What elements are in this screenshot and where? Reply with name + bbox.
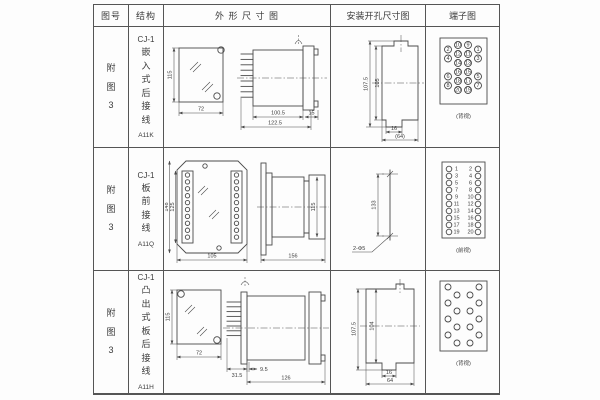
terminal-circle (446, 215, 452, 221)
dim-front-width: 72 (197, 106, 203, 112)
terminal-circle (234, 214, 238, 218)
screw-hole-icon (177, 291, 184, 298)
mounting-plate (261, 163, 266, 255)
terminal-circle (475, 208, 481, 214)
fig-no-row2: 附图3 (105, 181, 118, 238)
terminal-circle (445, 316, 451, 322)
mounting-drawing-row2: 133 2-Φ5 (332, 150, 425, 269)
terminal-circle (445, 284, 451, 290)
model-row2: CJ-1 (138, 171, 155, 180)
hatch-marks (185, 305, 207, 336)
terminal-circle (475, 166, 481, 172)
terminal-number: 20 (467, 229, 473, 235)
terminal-number: 4 (469, 173, 472, 179)
terminal-number: 10 (455, 42, 461, 48)
terminal-number: 18 (455, 78, 461, 84)
terminal-drawing-row3: (背视) (427, 273, 498, 392)
dim-flange: 15 (308, 110, 314, 116)
terminal-circle (454, 292, 460, 298)
hatch-marks (190, 62, 213, 92)
terminal-circle (467, 292, 473, 298)
terminal-circle (476, 332, 482, 338)
screw-hole-icon (216, 246, 220, 250)
terminal-circle (234, 235, 238, 239)
terminal-cell-row3: (背视) (426, 271, 499, 394)
terminal-number: 12 (467, 201, 473, 207)
terminal-circle (475, 194, 481, 200)
terminal-circles: 1357911131517192468101214161820 (446, 166, 481, 235)
terminal-circle (446, 222, 452, 228)
terminal-circles: 1012141618209111315171924681357 (445, 41, 482, 93)
hatch-marks (198, 186, 219, 219)
view-label: (前视) (456, 246, 471, 254)
dim-notch-width: 16 (390, 126, 396, 132)
terminal-circle (185, 207, 189, 211)
terminal-cell-row2: 1357911131517192468101214161820 (前视) (426, 148, 499, 271)
terminal-number: 9 (455, 194, 458, 200)
terminal-circle (475, 215, 481, 221)
terminal-number: 5 (455, 180, 458, 186)
terminal-number: 2 (469, 166, 472, 172)
front-outline (177, 290, 221, 344)
terminal-circle (446, 208, 452, 214)
terminal-number: 11 (465, 51, 471, 57)
terminal-circle (446, 194, 452, 200)
terminal-number: 7 (476, 83, 479, 89)
structure-desc-row2: 板前接线 (139, 182, 152, 236)
terminal-number: 4 (446, 56, 449, 62)
terminal-circle (446, 173, 452, 179)
terminal-circle (475, 229, 481, 235)
terminal-circle (185, 228, 189, 232)
terminal-circle (446, 166, 452, 172)
terminal-circle (475, 180, 481, 186)
terminal-circle (467, 340, 473, 346)
side-view-a11h: 31.5 9.5 126 (223, 277, 329, 385)
flange-tab (314, 49, 318, 55)
hole-note: 2-Φ5 (353, 246, 365, 252)
terminal-number: 19 (465, 87, 471, 93)
view-label: (背视) (456, 112, 471, 120)
terminal-number: 1 (455, 166, 458, 172)
terminal-circle (454, 340, 460, 346)
terminal-circle (185, 173, 189, 177)
terminal-fins (227, 302, 241, 336)
dim-overall-width: (64) (395, 134, 405, 140)
view-label: (背视) (456, 359, 471, 367)
dim-length: 156 (288, 254, 297, 260)
mounting-cell-row1: 107.5 105 16 (64) (331, 27, 426, 148)
dim-outer-height: 107.5 (363, 77, 369, 91)
terminal-number: 3 (476, 56, 479, 62)
dim-front-height: 115 (165, 313, 171, 322)
dim-depth: 100.5 (271, 110, 285, 116)
model-row1: CJ-1 (138, 35, 155, 44)
terminal-circle (476, 316, 482, 322)
terminal-circle (185, 187, 189, 191)
dim-front-width: 72 (195, 351, 201, 357)
terminal-circle (454, 324, 460, 330)
structure-code-row1: A11K (138, 132, 153, 139)
terminal-circle (446, 229, 452, 235)
flange-tab (321, 295, 325, 301)
fig-no-cell-row2: 附图3 (94, 148, 129, 271)
header-outline: 外 形 尺 寸 图 (164, 5, 331, 27)
screw-hole-icon (213, 92, 219, 98)
terminal-circle (185, 221, 189, 225)
header-structure: 结构 (129, 5, 164, 27)
terminal-number: 10 (467, 194, 473, 200)
terminal-circle (475, 173, 481, 179)
terminal-circle (185, 214, 189, 218)
terminal-circle (445, 332, 451, 338)
front-outline (179, 48, 223, 102)
terminal-number: 8 (469, 187, 472, 193)
screw-hole-icon (202, 164, 206, 168)
terminal-circle (475, 201, 481, 207)
dim-body-height: 115 (311, 203, 317, 212)
terminal-circle (234, 194, 238, 198)
terminal-number: 8 (446, 83, 449, 89)
fig-no-row3: 附图3 (105, 304, 118, 361)
fig-no-cell-row3: 附图3 (94, 271, 129, 394)
terminal-circle (467, 324, 473, 330)
dim-plate-width: 105 (207, 254, 216, 260)
dim-outer-height: 107.5 (351, 322, 357, 336)
terminal-circle (185, 194, 189, 198)
terminal-circle (234, 187, 238, 191)
terminal-circle (234, 221, 238, 225)
structure-desc-row1: 嵌入式后接线 (139, 46, 152, 127)
header-mounting: 安装开孔尺寸图 (331, 5, 426, 27)
page: { "table": { "header": { "fig_no": "图号",… (0, 0, 600, 400)
terminal-drawing-row2: 1357911131517192468101214161820 (前视) (427, 150, 498, 269)
terminal-number: 6 (446, 74, 449, 80)
terminal-circle (234, 180, 238, 184)
header-terminal: 端子图 (426, 5, 499, 27)
terminal-fins (241, 54, 253, 97)
terminal-circle (476, 300, 482, 306)
terminal-number: 13 (453, 208, 459, 214)
terminal-circle (446, 180, 452, 186)
terminal-circle (234, 207, 238, 211)
terminal-number: 13 (465, 60, 471, 66)
terminal-number: 17 (465, 78, 471, 84)
dim-notch-width: 16 (385, 370, 391, 376)
fig-no-row1: 附图3 (105, 59, 118, 116)
flange-tab (321, 355, 325, 361)
spacer (266, 173, 272, 245)
dim-front-height: 115 (167, 70, 173, 79)
flange-tab (314, 101, 318, 107)
mounting-cell-row3: 107.5 104 16 64 (331, 271, 426, 394)
dim-inner-height: 105 (375, 78, 381, 87)
terminal-number: 2 (446, 47, 449, 53)
outline-cell-row2: 148 125 105 115 156 (164, 148, 331, 271)
dim-gap: 9.5 (260, 367, 268, 373)
terminal-circle (475, 222, 481, 228)
model-row3: CJ-1 (138, 273, 155, 282)
terminal-number: 5 (476, 74, 479, 80)
header-fig-no: 图号 (94, 5, 129, 27)
mounting-drawing-row1: 107.5 105 16 (64) (332, 28, 425, 147)
terminal-drawing-row1: 1012141618209111315171924681357 (背视) (427, 28, 498, 147)
front-view-a11q: 148 125 105 (165, 161, 247, 263)
dim-window-height: 125 (170, 202, 176, 211)
outline-cell-row3: 115 72 31.5 9.5 126 (164, 271, 331, 394)
terminal-number: 9 (466, 42, 469, 48)
spec-table: 图号 结构 外 形 尺 寸 图 安装开孔尺寸图 端子图 附图3 CJ-1 嵌入式… (93, 4, 500, 395)
terminal-number: 19 (453, 229, 459, 235)
structure-code-row3: A11H (138, 384, 154, 391)
terminal-number: 6 (469, 180, 472, 186)
terminal-circle (467, 308, 473, 314)
terminal-circle (454, 308, 460, 314)
terminal-number: 1 (476, 47, 479, 53)
terminal-number: 15 (453, 215, 459, 221)
structure-code-row2: A11Q (138, 241, 154, 248)
terminal-number: 16 (455, 69, 461, 75)
terminal-circles (445, 284, 482, 346)
dim-overall-width: 64 (386, 378, 392, 384)
terminal-number: 20 (455, 87, 461, 93)
mounting-drawing-row3: 107.5 104 16 64 (332, 273, 425, 392)
terminal-cell-row1: 1012141618209111315171924681357 (背视) (426, 27, 499, 148)
terminal-number: 14 (467, 208, 473, 214)
structure-cell-row3: CJ-1 凸出式板后接线 A11H (129, 271, 164, 394)
terminal-number: 15 (465, 69, 471, 75)
side-view-a11q: 115 156 (257, 163, 329, 263)
terminal-circle (185, 180, 189, 184)
terminal-number: 11 (454, 201, 460, 207)
terminal-number: 14 (455, 60, 461, 66)
structure-desc-row3: 凸出式板后接线 (139, 284, 152, 379)
terminal-circle (446, 201, 452, 207)
terminal-number: 7 (455, 187, 458, 193)
terminal-circle (446, 187, 452, 193)
terminal-circle (445, 300, 451, 306)
terminal-circle (475, 187, 481, 193)
terminal-circle (234, 200, 238, 204)
extension-lines (170, 290, 221, 360)
terminal-number: 12 (455, 51, 461, 57)
screw-hole-icon (213, 337, 220, 344)
terminal-circle (476, 284, 482, 290)
dim-body-depth: 126 (281, 376, 290, 382)
cutout-outline (382, 41, 418, 127)
terminal-number: 17 (453, 222, 459, 228)
front-view-a11k: 115 72 (167, 46, 224, 115)
outline-cell-row1: 115 72 100.5 15 122.5 (164, 27, 331, 148)
terminal-number: 16 (467, 215, 473, 221)
fig-no-cell-row1: 附图3 (94, 27, 129, 148)
terminal-circle (185, 200, 189, 204)
outline-drawing-row3: 115 72 31.5 9.5 126 (165, 272, 330, 392)
terminal-number: 3 (455, 173, 458, 179)
structure-cell-row2: CJ-1 板前接线 A11Q (129, 148, 164, 271)
side-view-a11k: 100.5 15 122.5 (237, 35, 327, 130)
dim-hole-span: 133 (371, 200, 377, 209)
mounting-cell-row2: 133 2-Φ5 (331, 148, 426, 271)
terminal-circle (234, 173, 238, 177)
outline-drawing-row2: 148 125 105 115 156 (165, 149, 330, 269)
terminal-circle (234, 228, 238, 232)
dim-overall: 122.5 (268, 120, 282, 126)
dim-fin-depth: 31.5 (231, 373, 242, 379)
terminal-circle (185, 235, 189, 239)
dim-inner-height: 104 (369, 321, 375, 330)
terminal-number: 18 (467, 222, 473, 228)
outline-drawing-row1: 115 72 100.5 15 122.5 (165, 28, 330, 147)
front-view-a11h: 115 72 (165, 290, 221, 360)
structure-cell-row1: CJ-1 嵌入式后接线 A11K (129, 27, 164, 148)
